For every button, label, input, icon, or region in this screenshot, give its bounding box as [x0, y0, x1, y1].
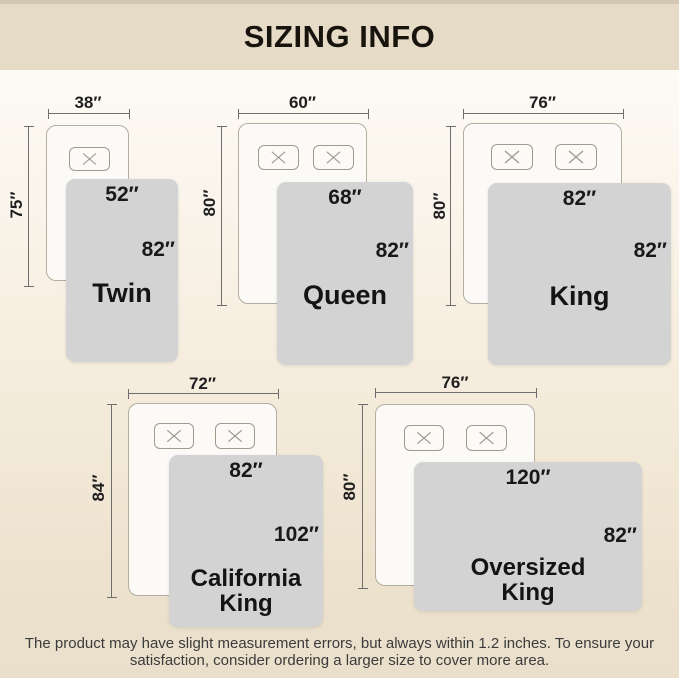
pillow-x-icon	[467, 426, 506, 450]
california-king-name-label: California King	[171, 566, 321, 616]
california-king-blanket: 82″ 102″ California King	[169, 455, 323, 627]
oversized-king-blanket-width-label: 120″	[414, 466, 642, 490]
pillow-x-icon	[556, 145, 596, 169]
queen-pillow-left	[258, 145, 299, 170]
king-pillow-left	[491, 144, 533, 170]
header-bar: SIZING INFO	[0, 0, 679, 70]
king-pillow-right	[555, 144, 597, 170]
king-name-label: King	[488, 281, 671, 312]
king-width-dimension-line	[463, 109, 624, 119]
header-accent-strip	[0, 0, 679, 4]
queen-name-label: Queen	[277, 280, 413, 311]
pillow-x-icon	[216, 424, 254, 448]
disclaimer-note: The product may have slight measurement …	[0, 636, 679, 669]
pillow-x-icon	[314, 146, 353, 169]
twin-pillow	[69, 147, 110, 171]
pillow-x-icon	[155, 424, 193, 448]
disclaimer-line-1: The product may have slight measurement …	[0, 636, 679, 653]
pillow-x-icon	[405, 426, 443, 450]
disclaimer-line-2: satisfaction, consider ordering a larger…	[0, 653, 679, 670]
queen-blanket-width-label: 68″	[277, 186, 413, 210]
twin-length-dimension-line	[24, 126, 34, 287]
california-king-blanket-length-label: 102″	[274, 523, 319, 547]
california-king-length-label: 84″	[89, 466, 109, 510]
queen-blanket: 68″ 82″ Queen	[277, 182, 413, 365]
california-king-blanket-width-label: 82″	[169, 459, 323, 483]
twin-blanket: 52″ 82″ Twin	[66, 179, 178, 362]
king-blanket-length-label: 82″	[634, 239, 667, 263]
king-blanket-width-label: 82″	[488, 187, 671, 211]
twin-blanket-width-label: 52″	[66, 183, 178, 207]
oversized-king-pillow-right	[466, 425, 507, 451]
oversized-king-length-dimension-line	[358, 404, 368, 589]
queen-pillow-right	[313, 145, 354, 170]
king-length-dimension-line	[446, 126, 456, 306]
oversized-king-name-label: Oversized King	[453, 555, 603, 605]
sizing-infographic: SIZING INFO 38″ 75″ 52″ 82″ Twin 60″ 80″…	[0, 0, 679, 678]
california-king-pillow-right	[215, 423, 255, 449]
oversized-king-pillow-left	[404, 425, 444, 451]
queen-length-dimension-line	[217, 126, 227, 306]
twin-blanket-length-label: 82″	[142, 238, 175, 262]
california-king-length-dimension-line	[107, 404, 117, 598]
pillow-x-icon	[492, 145, 532, 169]
oversized-king-blanket: 120″ 82″ Oversized King	[414, 462, 642, 611]
queen-width-dimension-line	[238, 109, 369, 119]
oversized-king-blanket-length-label: 82″	[604, 524, 637, 548]
oversized-king-length-label: 80″	[340, 465, 360, 509]
queen-blanket-length-label: 82″	[376, 239, 409, 263]
pillow-x-icon	[70, 148, 109, 170]
page-title: SIZING INFO	[244, 15, 436, 55]
pillow-x-icon	[259, 146, 298, 169]
twin-width-dimension-line	[48, 109, 130, 119]
california-king-pillow-left	[154, 423, 194, 449]
twin-name-label: Twin	[66, 278, 178, 309]
oversized-king-width-dimension-line	[375, 388, 537, 398]
california-king-width-dimension-line	[128, 389, 279, 399]
king-blanket: 82″ 82″ King	[488, 183, 671, 365]
